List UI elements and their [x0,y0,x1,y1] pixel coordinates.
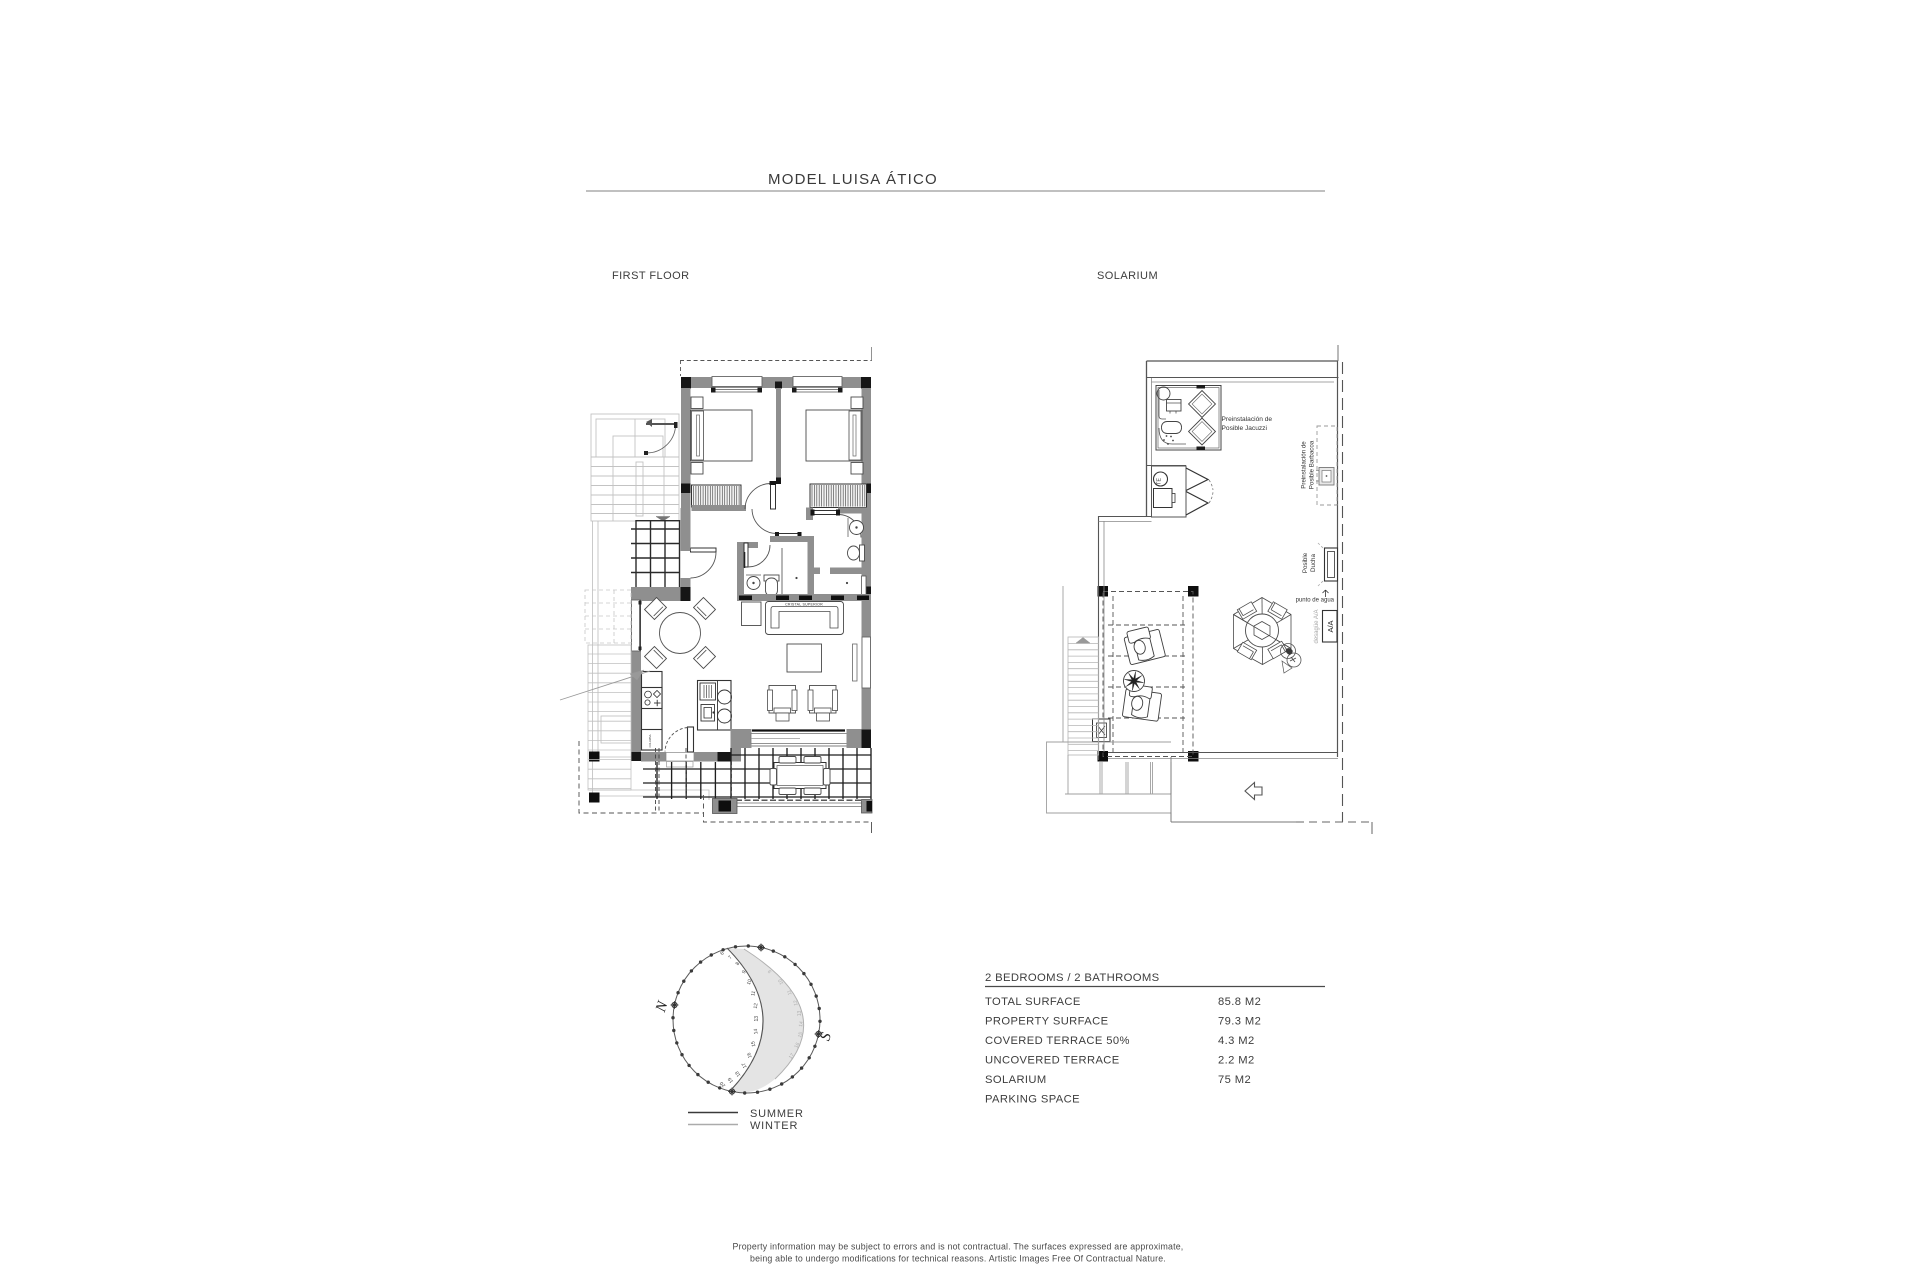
svg-text:4.3 M2: 4.3 M2 [1218,1035,1255,1047]
svg-text:75 M2: 75 M2 [1218,1074,1251,1086]
svg-text:Posible: Posible [1302,552,1309,573]
svg-text:Ducha: Ducha [1310,554,1317,572]
svg-text:2 BEDROOMS / 2 BATHROOMS: 2 BEDROOMS / 2 BATHROOMS [985,972,1160,984]
svg-text:FIRST FLOOR: FIRST FLOOR [612,270,689,282]
svg-text:PROPERTY SURFACE: PROPERTY SURFACE [985,1016,1109,1028]
svg-text:TOTAL SURFACE: TOTAL SURFACE [985,996,1081,1008]
svg-text:PARKING SPACE: PARKING SPACE [985,1094,1080,1106]
svg-text:punto de agua: punto de agua [1296,598,1335,604]
svg-text:79.3 M2: 79.3 M2 [1218,1016,1261,1028]
svg-text:Preinstalación de: Preinstalación de [1301,441,1308,489]
svg-text:14: 14 [753,1028,760,1034]
svg-text:COVERED TERRACE 50%: COVERED TERRACE 50% [985,1035,1130,1047]
svg-text:85.8 M2: 85.8 M2 [1218,996,1261,1008]
svg-text:Posible Jacuzzi: Posible Jacuzzi [1222,425,1268,432]
svg-text:Property information may be su: Property information may be subject to e… [733,1242,1184,1252]
svg-text:WINTER: WINTER [750,1120,798,1132]
svg-text:SOLARIUM: SOLARIUM [1097,270,1158,282]
svg-text:SOLARIUM: SOLARIUM [985,1074,1047,1086]
svg-text:being able to undergo modifica: being able to undergo modifications for … [750,1254,1166,1264]
svg-text:UNCOVERED TERRACE: UNCOVERED TERRACE [985,1055,1120,1067]
svg-text:12: 12 [793,999,800,1006]
svg-text:A/A: A/A [1326,620,1335,632]
svg-text:12: 12 [753,1003,760,1009]
svg-text:CRISTAL SUPERIOR: CRISTAL SUPERIOR [785,603,823,607]
svg-text:13: 13 [797,1011,803,1017]
svg-text:13: 13 [754,1016,760,1022]
svg-text:desagüe A/A: desagüe A/A [1314,609,1320,643]
svg-text:SUMMER: SUMMER [750,1108,804,1120]
svg-text:Posible Barbacoa: Posible Barbacoa [1309,440,1316,489]
svg-text:MODEL LUISA ÁTICO: MODEL LUISA ÁTICO [768,171,938,188]
svg-text:Preinstalación de: Preinstalación de [1222,416,1273,423]
svg-text:TE: TE [1157,478,1163,485]
svg-text:2.2 M2: 2.2 M2 [1218,1055,1255,1067]
svg-text:COLUMNA: COLUMNA [648,734,652,747]
